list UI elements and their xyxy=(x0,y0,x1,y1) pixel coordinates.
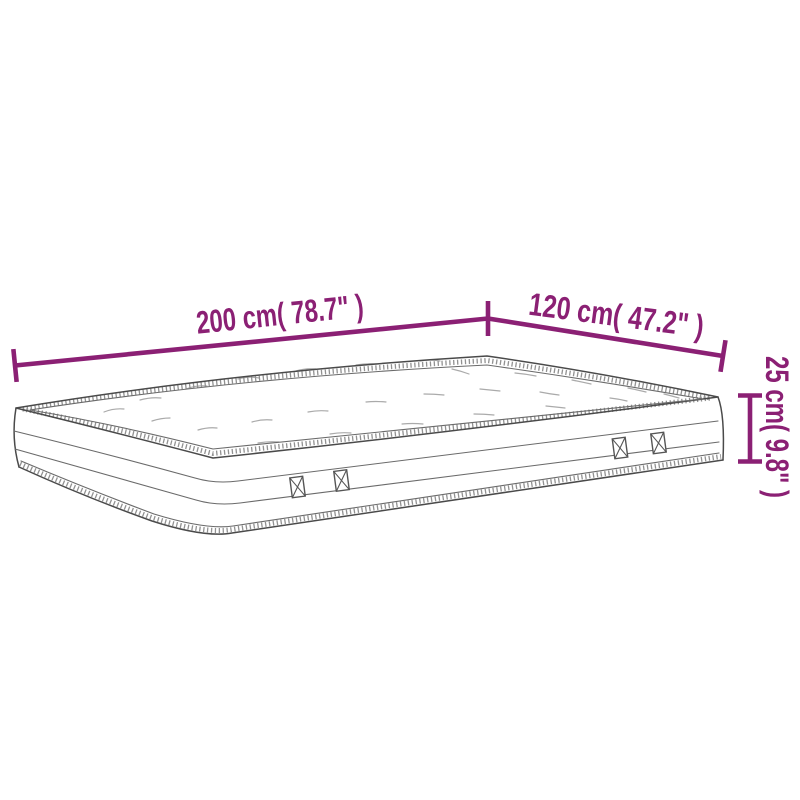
product-dimension-diagram: 200 cm( 78.7" ) 120 cm( 47.2" ) 25 cm( 9… xyxy=(0,0,800,800)
width-dimension-right-cap xyxy=(720,340,725,372)
mattress-illustration xyxy=(14,356,723,534)
mattress-handle-1 xyxy=(290,476,305,498)
mattress-handle-2 xyxy=(334,470,349,492)
height-dimension: 25 cm( 9.8" ) xyxy=(738,356,795,498)
height-dimension-label: 25 cm( 9.8" ) xyxy=(759,356,795,498)
width-dimension: 120 cm( 47.2" ) xyxy=(488,286,726,372)
diagram-svg: 200 cm( 78.7" ) 120 cm( 47.2" ) 25 cm( 9… xyxy=(0,0,800,800)
width-dimension-label: 120 cm( 47.2" ) xyxy=(527,286,706,345)
mattress-handle-3 xyxy=(612,437,627,459)
length-dimension-left-cap xyxy=(13,349,16,382)
mattress-handle-4 xyxy=(651,432,666,454)
